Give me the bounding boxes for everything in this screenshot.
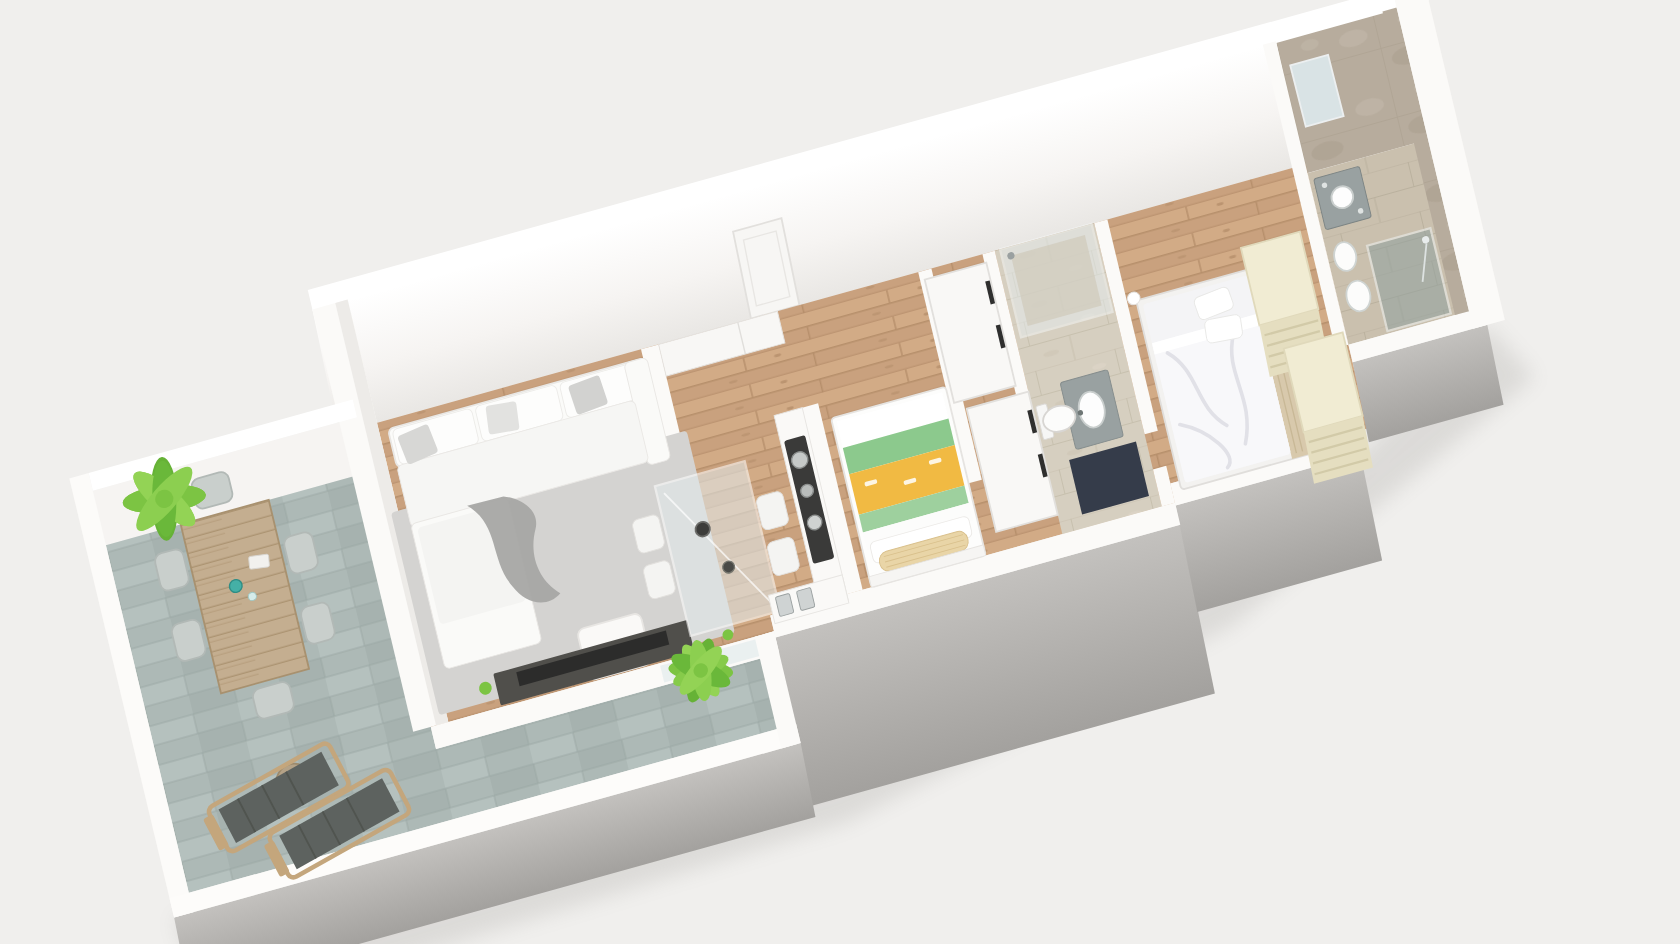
floorplan-svg [0,0,1680,944]
napkin [249,554,270,569]
pillow [485,401,519,435]
floorplan-render [0,0,1680,944]
